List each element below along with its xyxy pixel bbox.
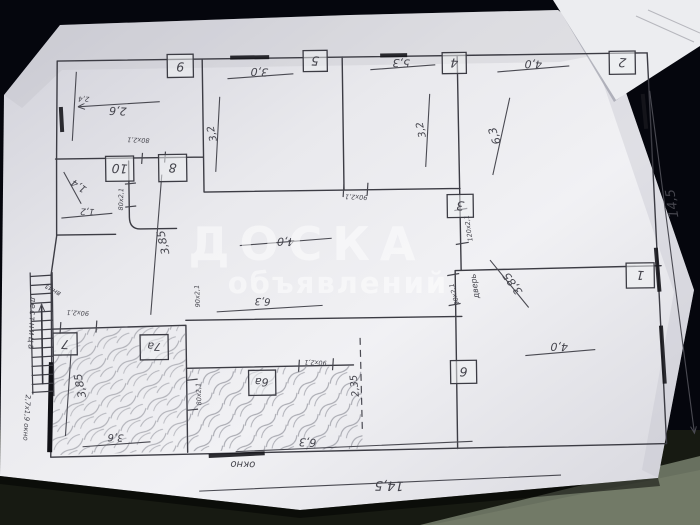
door-size-90-hall: 90x2,1 (193, 285, 202, 308)
photo-of-floor-plan: 9 5 4 2 10 8 3 1 6 6а 7а 7 2,6 2,4 1,4 1… (0, 0, 700, 525)
dim-room1-width: 4,0 (550, 340, 568, 354)
dim-overall-width: 14,5 (375, 477, 404, 493)
dim-room4-width: 5,3 (392, 56, 410, 70)
door-size-90-room7a: 90x2,1 (66, 308, 89, 317)
room-label-7a: 7а (147, 339, 162, 353)
room-label-2: 2 (618, 55, 627, 70)
room-label-6: 6 (459, 364, 468, 379)
dim-room5-width: 3,0 (250, 65, 268, 79)
room-label-9: 9 (176, 59, 185, 74)
room-label-10: 10 (111, 161, 128, 177)
dim-room10-b: 1,2 (80, 205, 95, 216)
door-size-80-side: 80x2,1 (117, 188, 125, 211)
dim-room2-width: 4,0 (524, 57, 542, 71)
room-label-1: 1 (636, 268, 645, 283)
stairs-label: лестница (25, 295, 37, 351)
door-size-90-mid: 90x2,1 (345, 192, 368, 201)
room-label-6a: 6а (254, 375, 269, 389)
room-label-4: 4 (450, 55, 459, 70)
window-label: окно (230, 458, 255, 470)
room-label-7: 7 (61, 337, 70, 352)
room-label-3: 3 (456, 198, 465, 213)
door-size-80-top: 80x2,1 (127, 136, 150, 145)
floor-plan-photo-canvas: 9 5 4 2 10 8 3 1 6 6а 7а 7 2,6 2,4 1,4 1… (0, 0, 700, 525)
door-size-80-room6a: 80x2,1 (194, 383, 203, 406)
dim-room6-split: 2,35 (349, 374, 362, 397)
stairs-direction-arrow (42, 304, 43, 384)
dim-room7a-width: 3,6 (107, 431, 123, 443)
dim-room9-width: 2,6 (109, 104, 127, 118)
room-label-5: 5 (311, 53, 320, 68)
watermark-line1: ДОСКА (188, 217, 425, 271)
room-label-8: 8 (168, 160, 177, 175)
watermark-line2: объявлений (228, 266, 449, 300)
window-marker-left-large (48, 362, 52, 452)
dim-room6-width: 6,3 (299, 435, 317, 449)
dim-room9-height: 2,4 (78, 94, 89, 102)
door-size-90-room6: 90x2,1 (304, 358, 327, 367)
